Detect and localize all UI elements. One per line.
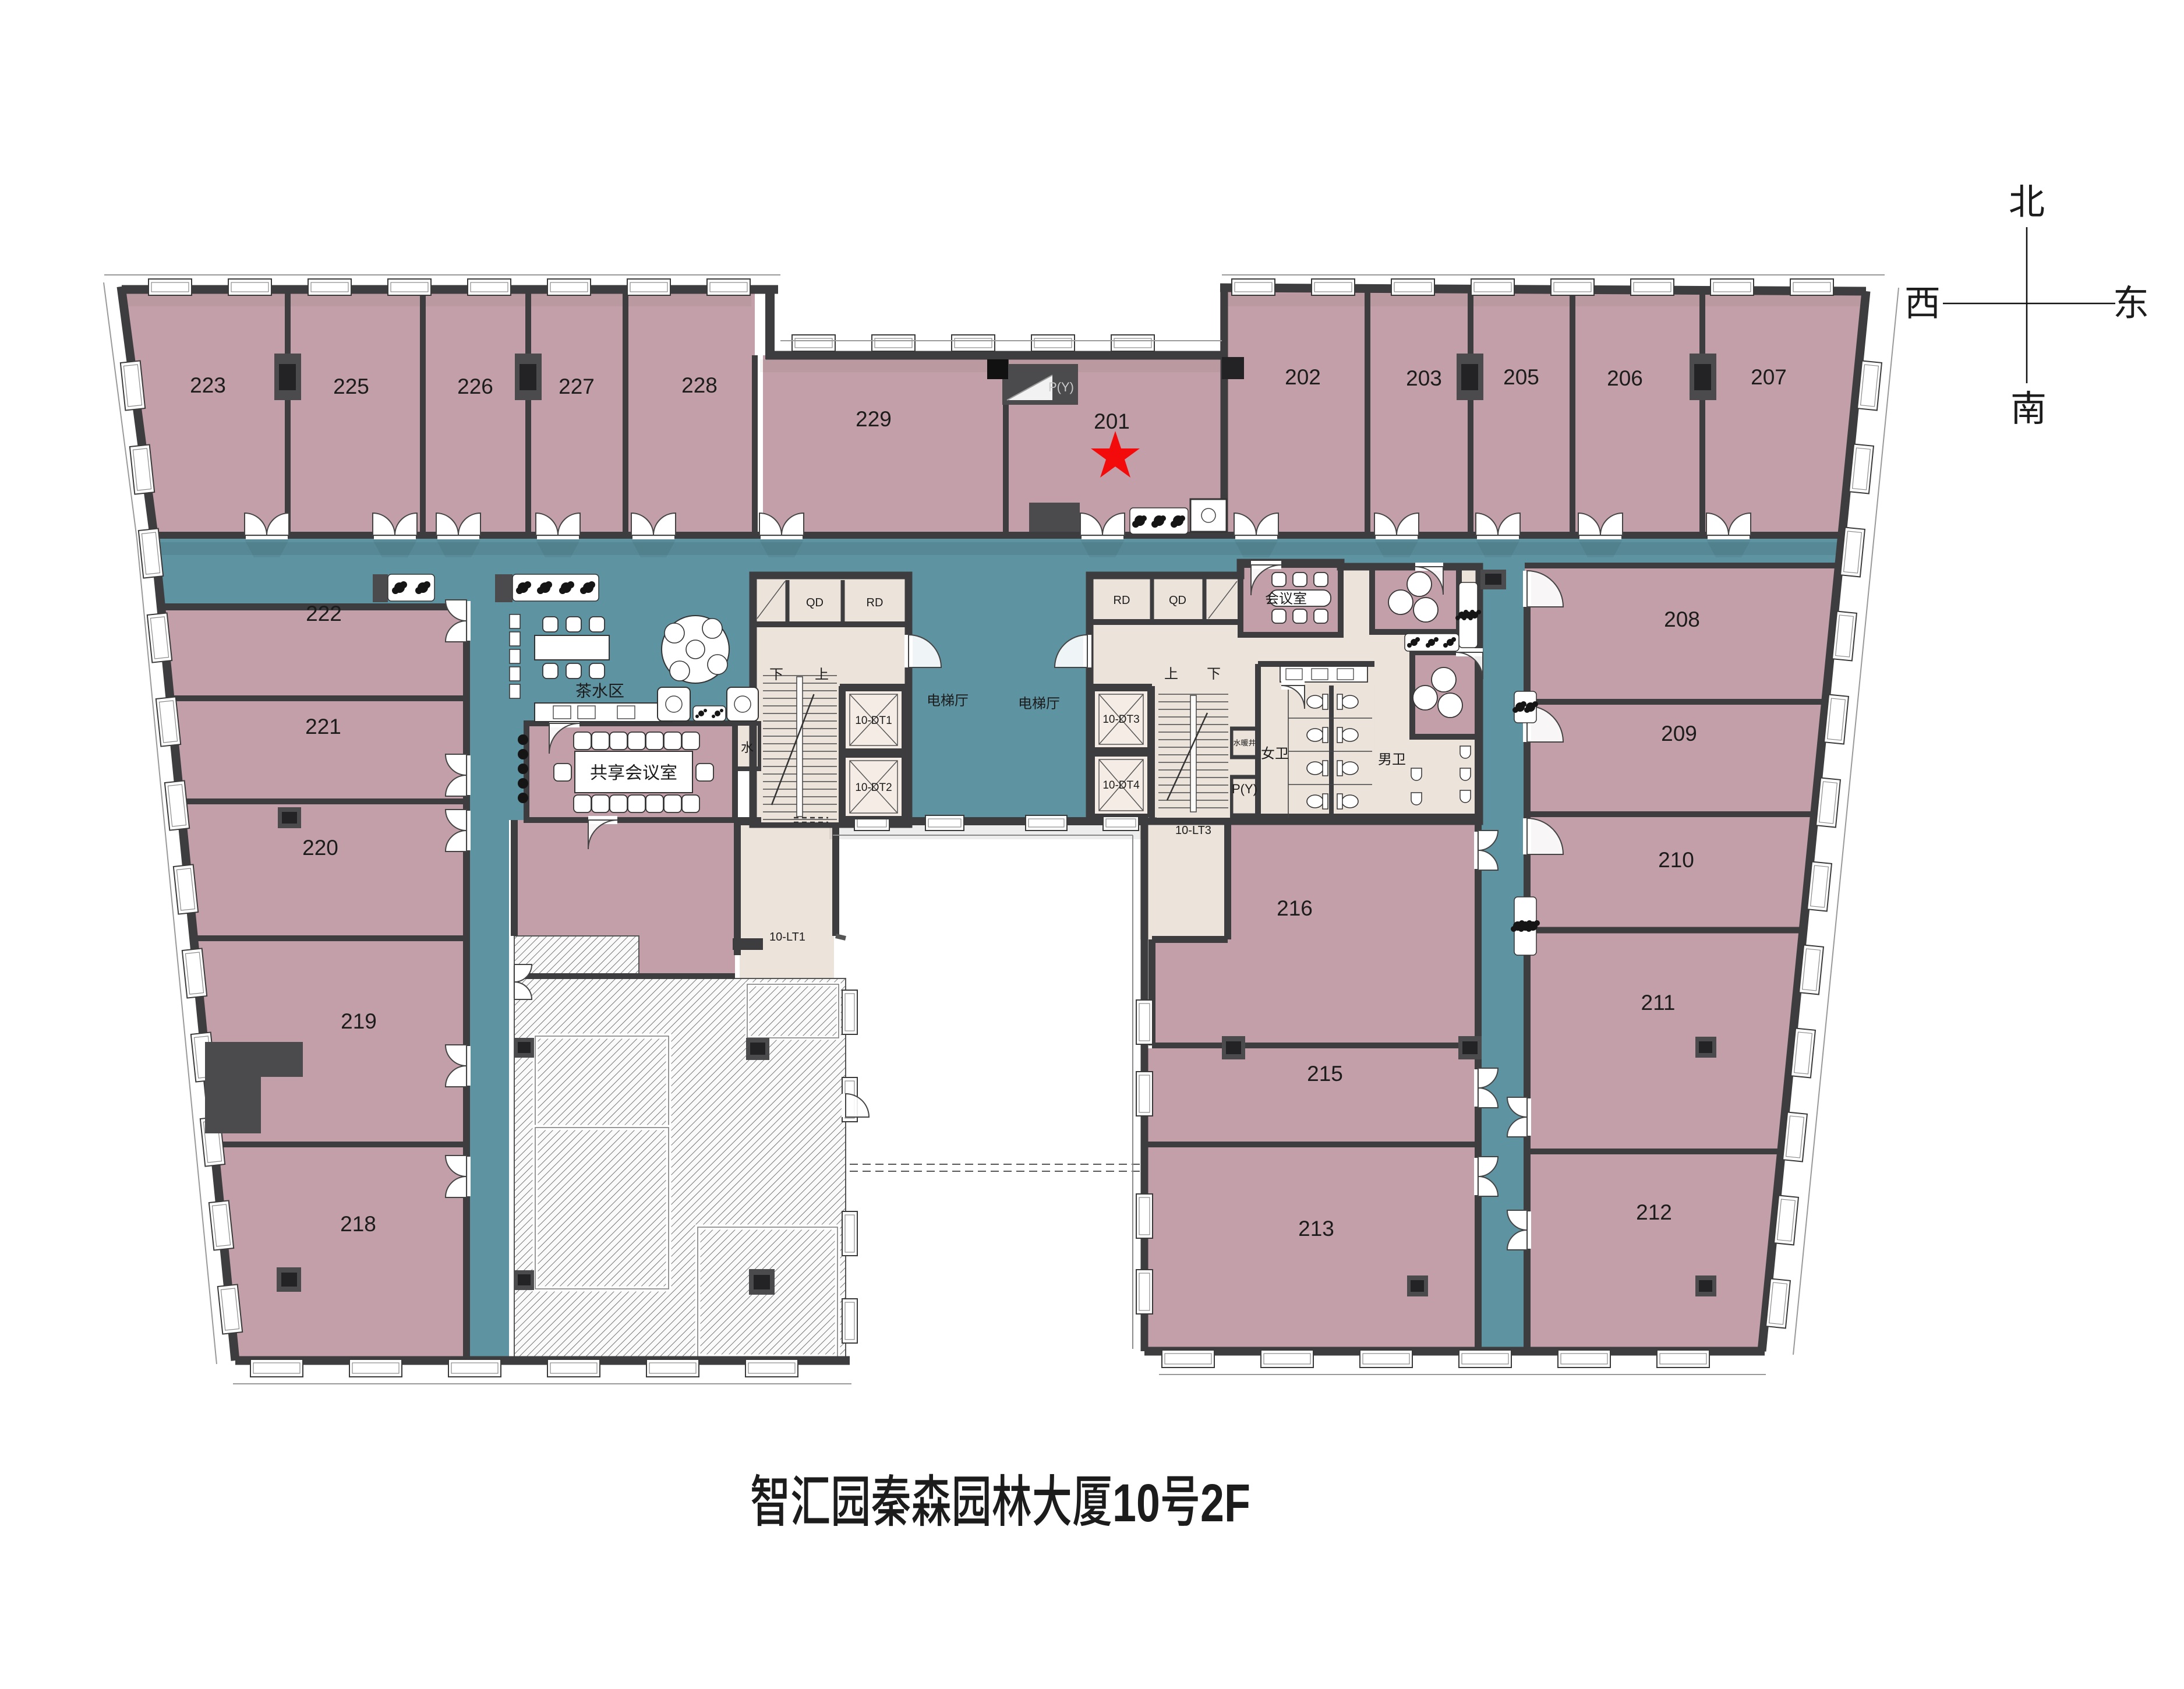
svg-text:206: 206 [1607,366,1643,390]
svg-text:219: 219 [341,1009,377,1033]
svg-text:212: 212 [1636,1200,1672,1224]
svg-text:QD: QD [1169,594,1186,607]
svg-text:10-DT2: 10-DT2 [855,782,892,794]
svg-text:228: 228 [681,373,718,397]
svg-text:RD: RD [867,596,884,609]
svg-text:P(Y): P(Y) [1232,782,1257,796]
svg-text:220: 220 [302,836,338,860]
svg-text:10-LT3: 10-LT3 [1175,824,1211,837]
svg-text:211: 211 [1641,991,1676,1015]
svg-text:201: 201 [1094,409,1130,433]
svg-text:229: 229 [856,407,892,431]
svg-text:210: 210 [1658,848,1694,872]
svg-text:QD: QD [806,596,824,609]
svg-text:10-LT1: 10-LT1 [769,931,805,944]
svg-text:205: 205 [1503,365,1539,389]
svg-text:223: 223 [190,373,226,397]
svg-text:203: 203 [1406,366,1442,390]
svg-text:10-DT4: 10-DT4 [1102,779,1140,792]
svg-text:202: 202 [1285,365,1321,389]
svg-text:F: F [1224,1473,1250,1533]
svg-text:P(Y): P(Y) [1048,380,1074,394]
svg-text:222: 222 [306,602,342,626]
svg-text:10-DT3: 10-DT3 [1102,713,1139,726]
svg-text:0: 0 [1136,1473,1160,1533]
svg-text:226: 226 [457,374,493,398]
svg-text:225: 225 [333,374,369,398]
svg-text:227: 227 [559,374,595,398]
svg-text:208: 208 [1664,607,1700,631]
svg-text:2: 2 [1200,1473,1224,1533]
svg-text:218: 218 [340,1212,376,1236]
svg-text:1: 1 [1112,1473,1136,1533]
svg-text:216: 216 [1277,896,1313,920]
svg-text:213: 213 [1298,1217,1334,1241]
svg-text:207: 207 [1751,365,1787,389]
svg-text:209: 209 [1661,722,1697,745]
svg-text:221: 221 [305,715,341,739]
svg-text:10-DT1: 10-DT1 [855,715,892,727]
svg-text:RD: RD [1114,594,1130,607]
svg-text:215: 215 [1307,1062,1343,1086]
